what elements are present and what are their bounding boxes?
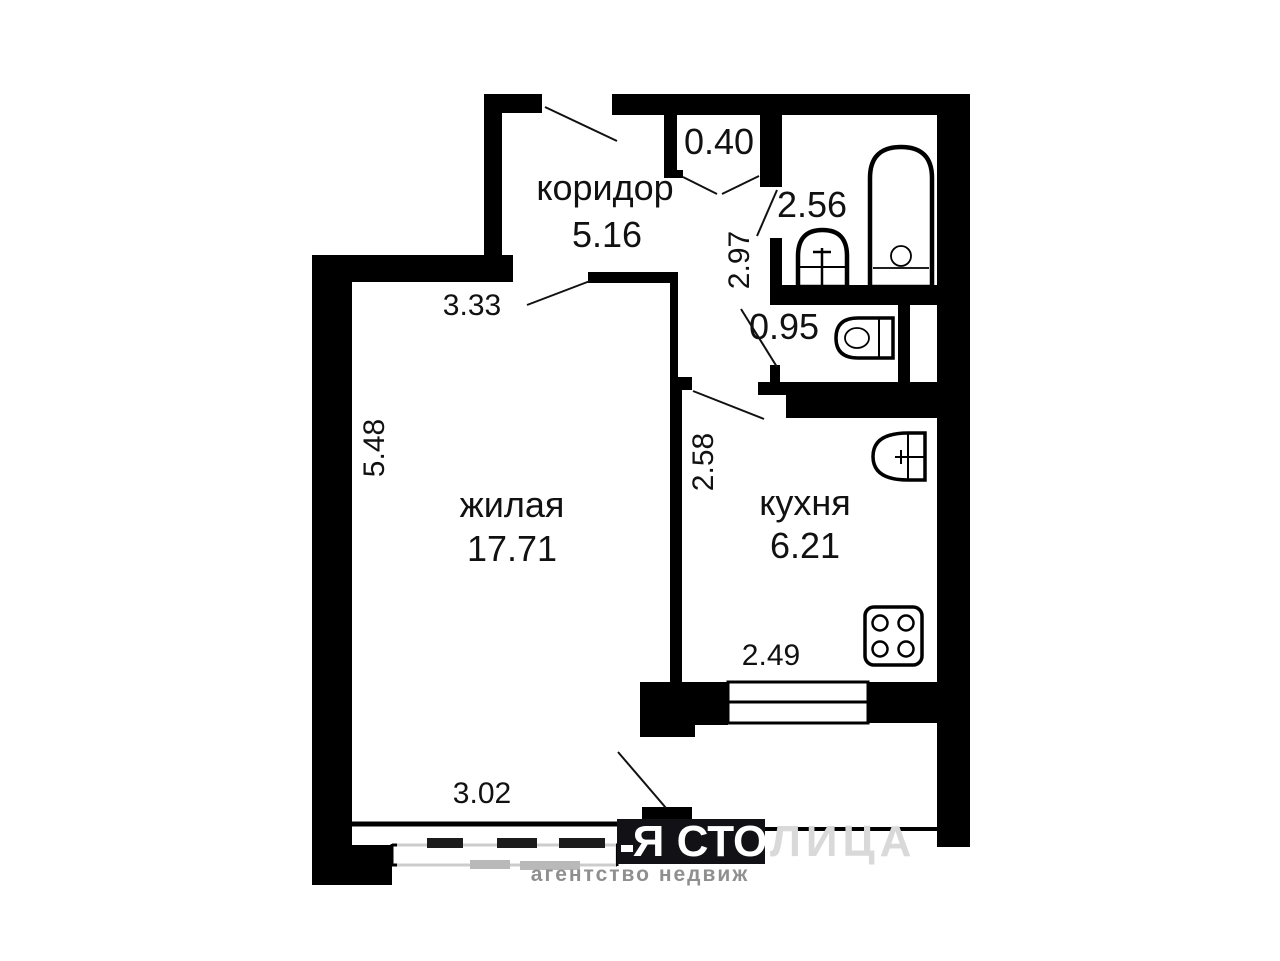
bottom-left-corner-wall xyxy=(312,845,392,885)
kitchen-window-left-block xyxy=(640,682,728,725)
kitchen-window-left-block-2 xyxy=(640,725,695,737)
bathtub-icon xyxy=(870,147,932,287)
top-outer-wall xyxy=(612,94,937,115)
corridor-living-divider xyxy=(588,272,678,283)
kitchen-area-label: 6.21 xyxy=(770,525,840,566)
corridor-left-wall xyxy=(484,94,502,257)
floor-plan-page: коридор 5.16 0.40 2.56 0.95 жилая 17.71 … xyxy=(0,0,1280,961)
stove-icon xyxy=(865,607,922,665)
kitchen-top-left-jamb xyxy=(758,382,790,395)
closet-left-wall xyxy=(664,115,677,170)
stove-outline xyxy=(865,607,922,665)
dim-living-top: 3.33 xyxy=(443,289,501,322)
bathroom-area-label: 2.56 xyxy=(777,184,847,225)
toilet-icon xyxy=(836,318,893,358)
watermark-ghost-4 xyxy=(470,860,510,869)
floor-plan-drawing: коридор 5.16 0.40 2.56 0.95 жилая 17.71 … xyxy=(0,0,1280,961)
dim-hall-height: 2.97 xyxy=(723,231,756,289)
watermark-dash xyxy=(621,845,633,852)
kitchen-name-label: кухня xyxy=(759,482,851,523)
toilet-area-label: 0.95 xyxy=(749,306,819,347)
washbasin-icon xyxy=(798,230,847,287)
living-area-label: 17.71 xyxy=(467,528,557,569)
corridor-area-label: 5.16 xyxy=(572,214,642,255)
watermark-ghost-2 xyxy=(497,838,537,848)
watermark-ghost-3 xyxy=(559,838,605,848)
watermark-text-line2: агентство недвиж xyxy=(531,863,749,886)
kitchen-top-wall xyxy=(786,382,937,418)
toilet-left-jamb xyxy=(770,365,780,383)
living-name-label: жилая xyxy=(460,484,565,525)
dim-living-bottom: 3.02 xyxy=(453,777,511,810)
toilet-shaft-divider xyxy=(898,297,910,383)
living-left-wall xyxy=(312,255,352,885)
watermark-ghost-1 xyxy=(427,838,463,848)
corridor-name-label: коридор xyxy=(536,167,673,208)
bathroom-left-wall xyxy=(770,238,782,288)
watermark-text-strong: Я СТО xyxy=(633,817,768,866)
dim-living-height: 5.48 xyxy=(358,419,391,477)
kitchen-sink-icon xyxy=(873,433,925,480)
watermark-text-faded: ЛИЦА xyxy=(770,817,916,866)
kitchen-window-right-block xyxy=(868,682,937,723)
dim-kitchen-bottom: 2.49 xyxy=(742,639,800,672)
kitchen-left-wall xyxy=(670,390,682,682)
right-outer-wall xyxy=(937,94,970,847)
living-right-jamb xyxy=(670,377,692,390)
closet-right-wall xyxy=(760,115,782,187)
dim-kitchen-left: 2.58 xyxy=(687,433,720,491)
closet-area-label: 0.40 xyxy=(684,121,754,162)
living-right-wall-upper xyxy=(670,272,678,377)
